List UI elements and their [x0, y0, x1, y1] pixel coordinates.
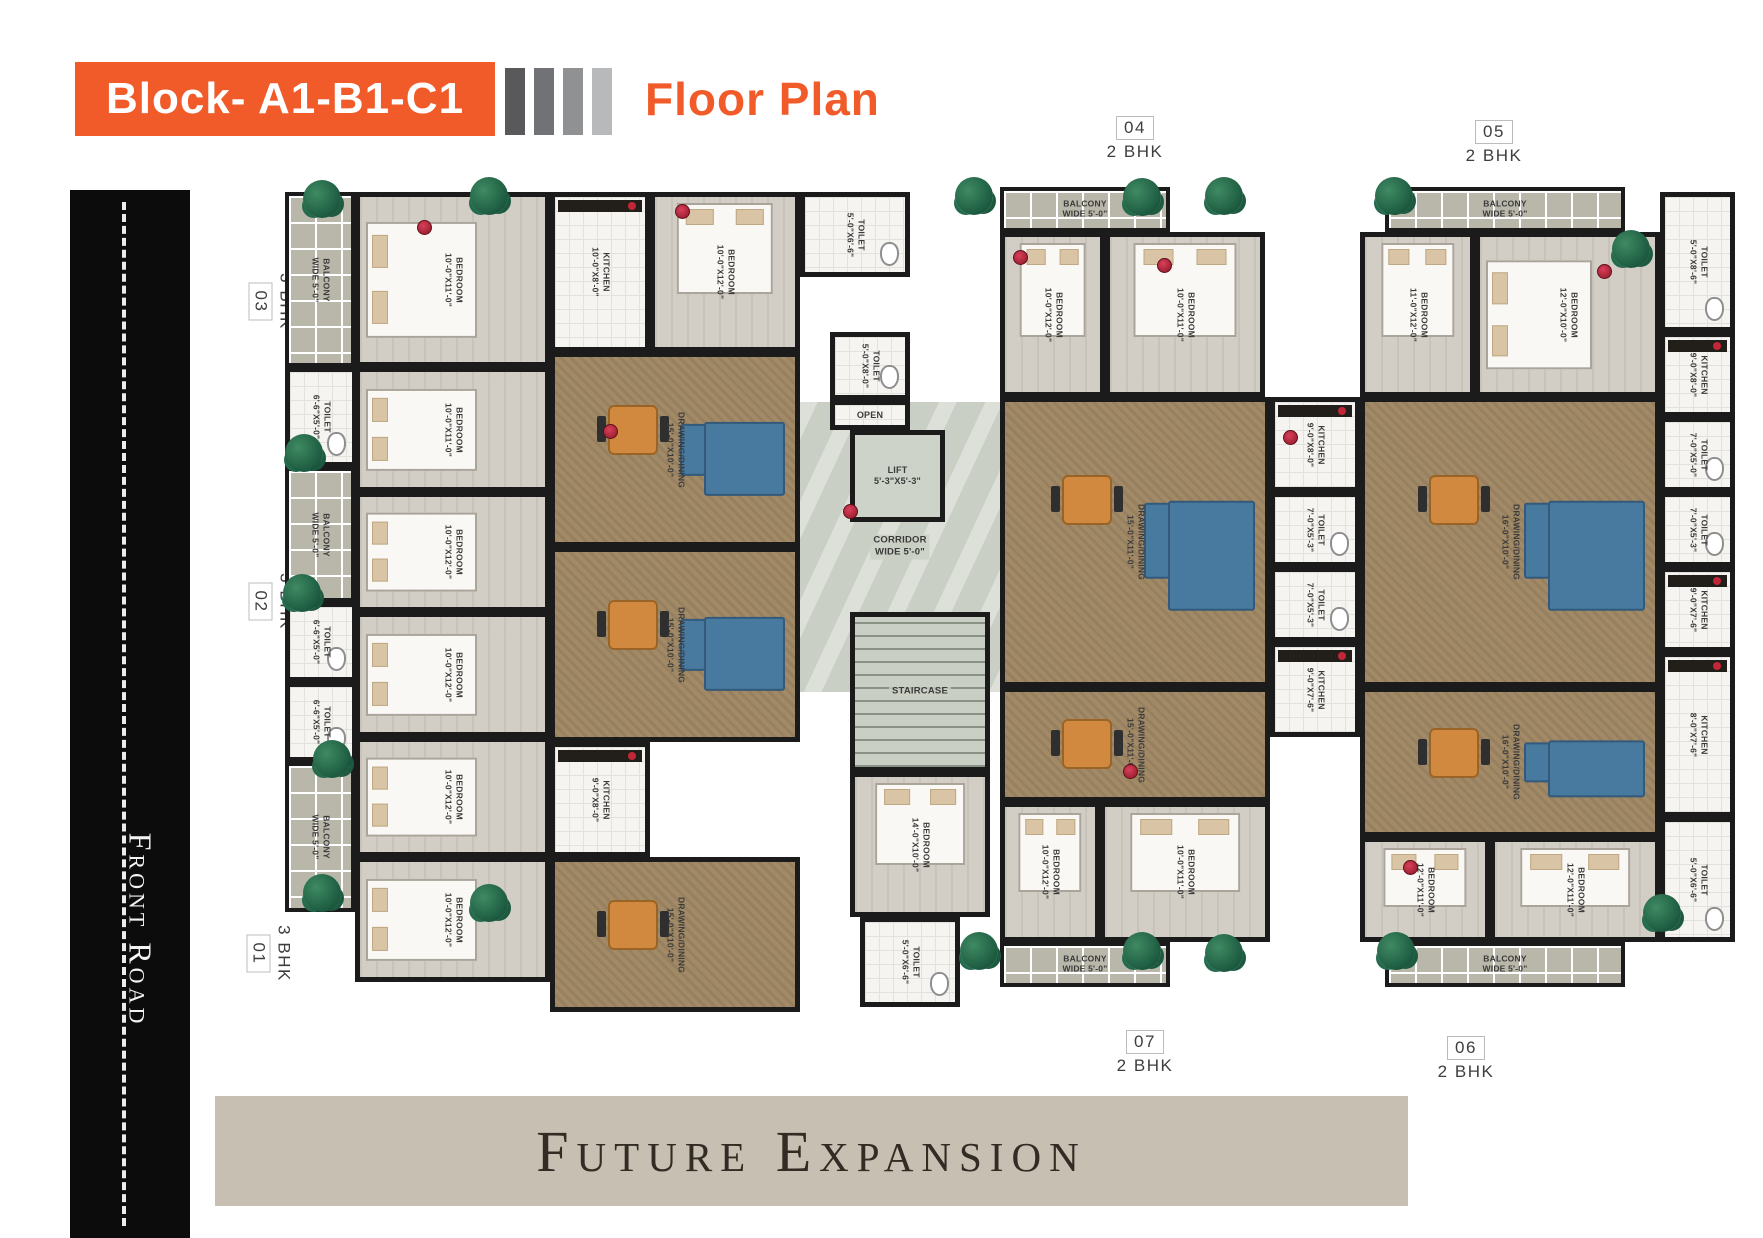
plant-pot-icon	[1283, 430, 1298, 445]
plant-pot-icon	[675, 204, 690, 219]
wc-icon	[1330, 607, 1349, 631]
room-label: OPEN	[857, 410, 883, 420]
room-label: BALCONYWIDE 5'-0"	[310, 815, 331, 860]
tree-icon	[1123, 178, 1161, 216]
unit-number: 04	[1116, 116, 1154, 140]
tree-icon	[1612, 230, 1650, 268]
table-icon	[1429, 475, 1479, 525]
unit-number: 05	[1475, 120, 1513, 144]
unit-label-07: 07 2 BHK	[1095, 1030, 1195, 1076]
tree-icon	[955, 177, 993, 215]
room-open: OPEN	[830, 400, 910, 430]
room-living: DRAWING/DINING15'-0"X11'-0"	[1000, 397, 1270, 687]
counter-icon	[1278, 405, 1352, 417]
room-label: BALCONYWIDE 5'-0"	[1483, 954, 1528, 975]
room-label: TOILET5'-0"X6'-6"	[845, 212, 866, 257]
unit-type: 2 BHK	[1438, 1062, 1495, 1082]
room-bedroom: BEDROOM10'-0"X12'-0"	[355, 737, 550, 857]
tree-icon	[470, 177, 508, 215]
room-bedroom: BEDROOM11'-0"X12'-0"	[1360, 232, 1475, 397]
plant-pot-icon	[843, 504, 858, 519]
room-toilet: TOILET7'-0"X5'-3"	[1270, 492, 1360, 567]
wc-icon	[880, 242, 899, 266]
bed-h-icon	[366, 221, 477, 337]
room-living: DRAWING/DINING16'-0"X10'-0"	[1360, 687, 1660, 837]
sofa-icon	[704, 422, 785, 496]
wc-icon	[1705, 907, 1724, 931]
page-title: Floor Plan	[645, 72, 880, 126]
divider-bar	[534, 68, 554, 135]
counter-icon	[1668, 340, 1727, 352]
room-kitchen: KITCHEN8'-0"X7'-6"	[1660, 652, 1735, 817]
room-bedroom: BEDROOM14'-0"X10'-0"	[850, 772, 990, 917]
room-kitchen: KITCHEN9'-0"X7'-6"	[1660, 567, 1735, 652]
table-icon	[1429, 728, 1479, 778]
room-toilet: TOILET5'-0"X8'-6"	[1660, 192, 1735, 332]
table-icon	[608, 900, 658, 950]
wc-icon	[327, 647, 346, 671]
table-icon	[1062, 475, 1112, 525]
room-bedroom: BEDROOM10'-0"X12'-0"	[1000, 802, 1100, 942]
room-label: BALCONYWIDE 5'-0"	[310, 512, 331, 557]
room-label: CORRIDORWIDE 5'-0"	[870, 535, 929, 560]
table-icon	[1062, 719, 1112, 769]
tree-icon	[285, 434, 323, 472]
front-road-label: Front Road	[121, 833, 158, 1028]
unit-label-04: 04 2 BHK	[1085, 116, 1185, 162]
room-label: STAIRCASE	[889, 686, 951, 699]
room-label: BALCONYWIDE 5'-0"	[1483, 199, 1528, 220]
room-label: KITCHEN9'-0"X8'-0"	[1687, 352, 1708, 397]
block-label: Block- A1-B1-C1	[106, 74, 464, 124]
tree-icon	[303, 874, 341, 912]
room-label: TOILET7'-0"X5'-3"	[1305, 582, 1326, 627]
tree-icon	[960, 932, 998, 970]
bed-h-icon	[366, 513, 477, 592]
plant-pot-icon	[1597, 264, 1612, 279]
divider-bar	[592, 68, 612, 135]
room-toilet: TOILET5'-0"X6'-6"	[800, 192, 910, 277]
tree-icon	[283, 574, 321, 612]
room-label: TOILET5'-0"X8'-6"	[1687, 240, 1708, 285]
wc-icon	[1705, 297, 1724, 321]
plant-pot-icon	[603, 424, 618, 439]
room-balcony: BALCONYWIDE 5'-0"	[1385, 942, 1625, 987]
room-toilet: TOILET6'-6"X5'-0"	[285, 602, 357, 682]
room-kitchen: KITCHEN9'-0"X8'-0"	[1270, 397, 1360, 492]
room-living: DRAWING/DINING16'-0"X10'-0"	[1360, 397, 1660, 687]
bed-v-icon	[875, 783, 965, 865]
room-kitchen: KITCHEN9'-0"X7'-6"	[1270, 642, 1360, 737]
wc-icon	[1705, 532, 1724, 556]
room-toilet: TOILET5'-0"X8'-0"	[830, 332, 910, 400]
room-stair: STAIRCASE	[850, 612, 990, 772]
table-icon	[608, 600, 658, 650]
room-bedroom: BEDROOM12'-0"X11'-0"	[1490, 837, 1660, 942]
room-kitchen: KITCHEN9'-0"X8'-0"	[550, 742, 650, 857]
bed-v-icon	[1383, 848, 1466, 907]
unit-label-06: 06 2 BHK	[1416, 1036, 1516, 1082]
front-road-strip: Front Road	[70, 190, 190, 1238]
room-label: TOILET7'-0"X5'-3"	[1305, 507, 1326, 552]
sofa-icon	[704, 617, 785, 691]
room-label: KITCHEN10'-0"X8'-0"	[590, 247, 611, 296]
sofa-icon	[1548, 501, 1645, 611]
room-living: DRAWING/DINING15'-0"X11'-0"	[1000, 687, 1270, 802]
unit-type: 2 BHK	[1107, 142, 1164, 162]
room-label: TOILET5'-0"X6'-6"	[900, 940, 921, 985]
room-kitchen: KITCHEN10'-0"X8'-0"	[550, 192, 650, 352]
future-expansion-label: Future Expansion	[536, 1118, 1086, 1185]
bed-v-icon	[1134, 243, 1237, 337]
room-label: KITCHEN9'-0"X7'-6"	[1687, 587, 1708, 632]
room-toilet: TOILET5'-0"X6'-6"	[860, 917, 960, 1007]
plant-pot-icon	[1157, 258, 1172, 273]
tree-icon	[470, 884, 508, 922]
room-label: DRAWING/DINING16'-0"X10'-0"	[1500, 724, 1521, 800]
room-label: DRAWING/DINING16'-0"X10'-0"	[1500, 504, 1521, 580]
bed-v-icon	[1019, 243, 1086, 337]
wc-icon	[880, 365, 899, 389]
room-label: BALCONYWIDE 5'-0"	[310, 257, 331, 302]
plant-pot-icon	[1403, 860, 1418, 875]
tree-icon	[303, 180, 341, 218]
bed-h-icon	[1486, 260, 1592, 369]
bed-v-icon	[1018, 813, 1081, 892]
room-label: KITCHEN9'-0"X7'-6"	[1305, 667, 1326, 712]
room-label: BALCONYWIDE 5'-0"	[1063, 954, 1108, 975]
unit-type: 2 BHK	[1117, 1056, 1174, 1076]
bed-v-icon	[677, 203, 773, 294]
room-living: DRAWING/DINING15'-0"X10'-0"	[550, 857, 800, 1012]
tree-icon	[1123, 932, 1161, 970]
room-label: BALCONYWIDE 5'-0"	[1063, 199, 1108, 220]
bed-h-icon	[366, 878, 477, 960]
bed-h-icon	[366, 633, 477, 715]
tree-icon	[1205, 934, 1243, 972]
room-bedroom: BEDROOM10'-0"X11'-0"	[1105, 232, 1265, 397]
floor-plan: BALCONYWIDE 5'-0"BEDROOM10'-0"X11'-0"TOI…	[255, 172, 1735, 1012]
future-expansion-bar: Future Expansion	[215, 1096, 1408, 1206]
room-living: DRAWING/DINING15'-0"X10'-0"	[550, 547, 800, 742]
bed-v-icon	[1381, 243, 1454, 337]
room-kitchen: KITCHEN9'-0"X8'-0"	[1660, 332, 1735, 417]
room-bedroom: BEDROOM10'-0"X12'-0"	[355, 492, 550, 612]
room-bedroom: BEDROOM10'-0"X12'-0"	[355, 612, 550, 737]
room-label: TOILET5'-0"X6'-6"	[1687, 857, 1708, 902]
counter-icon	[1278, 650, 1352, 662]
counter-icon	[1668, 660, 1727, 672]
wc-icon	[1705, 457, 1724, 481]
sofa-icon	[1548, 740, 1645, 797]
plant-pot-icon	[1123, 764, 1138, 779]
room-bedroom: BEDROOM10'-0"X11'-0"	[1100, 802, 1270, 942]
room-lift: LIFT5'-3"X5'-3"	[850, 430, 945, 522]
room-toilet: TOILET7'-0"X5'-0"	[1660, 417, 1735, 492]
counter-icon	[558, 750, 642, 762]
counter-icon	[558, 200, 642, 212]
divider-bar	[563, 68, 583, 135]
bed-h-icon	[366, 388, 477, 470]
tree-icon	[1375, 177, 1413, 215]
unit-label-05: 05 2 BHK	[1444, 120, 1544, 166]
plant-pot-icon	[417, 220, 432, 235]
road-centerline	[122, 202, 126, 1226]
tree-icon	[1377, 932, 1415, 970]
wc-icon	[1330, 532, 1349, 556]
bed-h-icon	[366, 758, 477, 837]
sofa-icon	[1168, 501, 1255, 611]
tree-icon	[1205, 177, 1243, 215]
room-label: KITCHEN8'-0"X7'-6"	[1687, 712, 1708, 757]
room-label: DRAWING/DINING15'-0"X11'-0"	[1125, 504, 1146, 580]
room-label: KITCHEN9'-0"X8'-0"	[1305, 422, 1326, 467]
room-bedroom: BEDROOM10'-0"X11'-0"	[355, 367, 550, 492]
tree-icon	[313, 740, 351, 778]
room-label: LIFT5'-3"X5'-3"	[874, 465, 921, 487]
plant-pot-icon	[1013, 250, 1028, 265]
bed-v-icon	[1130, 813, 1240, 892]
room-living: DRAWING/DINING15'-0"X10'-0"	[550, 352, 800, 547]
divider-bar	[505, 68, 525, 135]
room-bedroom: BEDROOM10'-0"X11'-0"	[355, 192, 550, 367]
room-balcony: BALCONYWIDE 5'-0"	[285, 192, 355, 367]
unit-number: 07	[1126, 1030, 1164, 1054]
counter-icon	[1668, 575, 1727, 587]
wc-icon	[327, 432, 346, 456]
room-label: KITCHEN9'-0"X8'-0"	[590, 777, 611, 822]
tree-icon	[1643, 894, 1681, 932]
room-label: TOILET6'-6"X5'-0"	[311, 395, 332, 440]
wc-icon	[930, 972, 949, 996]
room-label: TOILET5'-0"X8'-0"	[860, 344, 881, 389]
unit-number: 06	[1447, 1036, 1485, 1060]
room-bedroom: BEDROOM10'-0"X12'-0"	[355, 857, 550, 982]
divider-bars	[505, 68, 612, 135]
room-toilet: TOILET7'-0"X5'-3"	[1270, 567, 1360, 642]
bed-v-icon	[1520, 848, 1630, 907]
room-bedroom: BEDROOM12'-0"X11'-0"	[1360, 837, 1490, 942]
room-balcony: BALCONYWIDE 5'-0"	[1385, 187, 1625, 232]
floor-plan-page: { "header": { "block_label": "Block- A1-…	[0, 0, 1763, 1238]
room-bedroom: BEDROOM10'-0"X12'-0"	[650, 192, 800, 352]
block-badge: Block- A1-B1-C1	[75, 62, 495, 136]
unit-type: 2 BHK	[1466, 146, 1523, 166]
room-toilet: TOILET7'-0"X5'-3"	[1660, 492, 1735, 567]
